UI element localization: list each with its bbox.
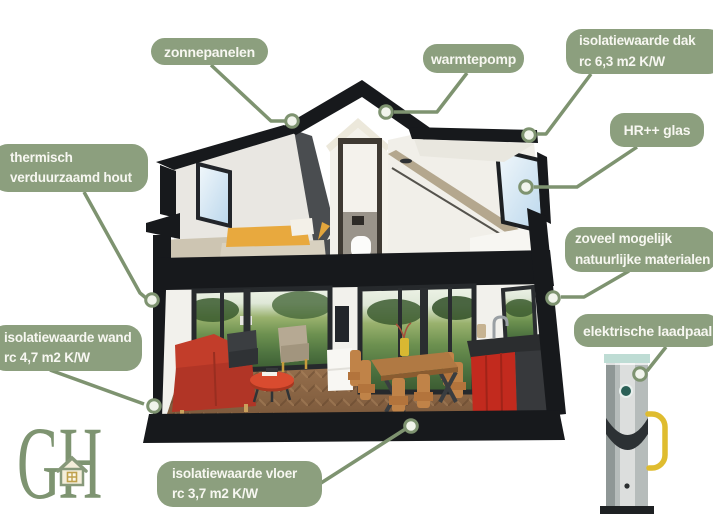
marker-vloer (405, 420, 418, 433)
bedroom-window (198, 164, 230, 226)
marker-hout (146, 294, 159, 307)
kitchen-view-tree (505, 299, 535, 317)
bed-pillow (290, 218, 314, 236)
label-text: isolatiewaarde wand (4, 328, 132, 348)
label-text: elektrische laadpaal (583, 323, 712, 339)
label-text: rc 6,3 m2 K/W (579, 52, 665, 72)
label-text: isolatiewaarde vloer (172, 464, 297, 484)
base-slab (143, 410, 565, 443)
label-hr-glas: HR++ glas (610, 113, 704, 147)
ground-floor (162, 284, 556, 418)
leader-hr-glas (534, 147, 637, 187)
bathroom-art (352, 216, 364, 225)
label-text: thermisch (10, 148, 73, 168)
infographic-canvas: zonnepanelen warmtepomp isolatiewaarde d… (0, 0, 713, 519)
label-text: rc 3,7 m2 K/W (172, 484, 258, 504)
leader-dak (537, 74, 591, 134)
label-text: warmtepomp (431, 51, 516, 67)
ev-charger (600, 354, 665, 514)
marker-hr-glas (520, 181, 533, 194)
wall-tv (335, 306, 349, 342)
marker-warmtepomp (380, 106, 393, 119)
leader-hout (84, 192, 146, 298)
ceiling-vent (400, 159, 412, 164)
leader-wand (50, 370, 144, 404)
label-text: zonnepanelen (164, 44, 255, 60)
red-cabinets (471, 352, 517, 417)
leader-warmtepomp (394, 73, 467, 112)
leader-zonnepanelen (211, 65, 285, 121)
charger-screw (624, 483, 629, 488)
label-isolatiewaarde-wand: isolatiewaarde wand rc 4,7 m2 K/W (0, 325, 142, 371)
dark-armchair (227, 330, 258, 368)
label-zonnepanelen: zonnepanelen (151, 38, 268, 65)
yellow-cable (648, 414, 665, 468)
leader-materialen (561, 271, 629, 297)
charger-base (600, 506, 654, 514)
label-text: verduurzaamd hout (10, 168, 132, 188)
label-text: rc 4,7 m2 K/W (4, 348, 90, 368)
side-cabinet (327, 348, 353, 391)
marker-zonnepanelen (286, 115, 299, 128)
kitchen-jar (477, 324, 486, 338)
label-isolatiewaarde-vloer: isolatiewaarde vloer rc 3,7 m2 K/W (157, 461, 322, 507)
label-thermisch-hout: thermisch verduurzaamd hout (0, 144, 148, 192)
charger-cap-line (604, 363, 650, 365)
charger-button (621, 386, 631, 396)
charger-cap (604, 354, 650, 363)
marker-wand (148, 400, 161, 413)
label-elektrische-laadpaal: elektrische laadpaal (574, 314, 713, 347)
label-text: zoveel mogelijk (575, 229, 672, 249)
marker-materialen (547, 292, 560, 305)
marker-dak (523, 129, 536, 142)
house (143, 80, 566, 443)
logo: GH (17, 412, 137, 519)
label-warmtepomp: warmtepomp (423, 44, 524, 73)
label-text: isolatiewaarde dak (579, 31, 695, 51)
label-text: HR++ glas (624, 122, 691, 138)
label-text: natuurlijke materialen (575, 250, 710, 270)
marker-laadpaal (634, 368, 647, 381)
upper-left-wall (160, 165, 176, 218)
logo-house-icon (56, 454, 88, 488)
label-isolatiewaarde-dak: isolatiewaarde dak rc 6,3 m2 K/W (566, 29, 713, 74)
label-natuurlijke-materialen: zoveel mogelijk natuurlijke materialen (565, 227, 713, 272)
